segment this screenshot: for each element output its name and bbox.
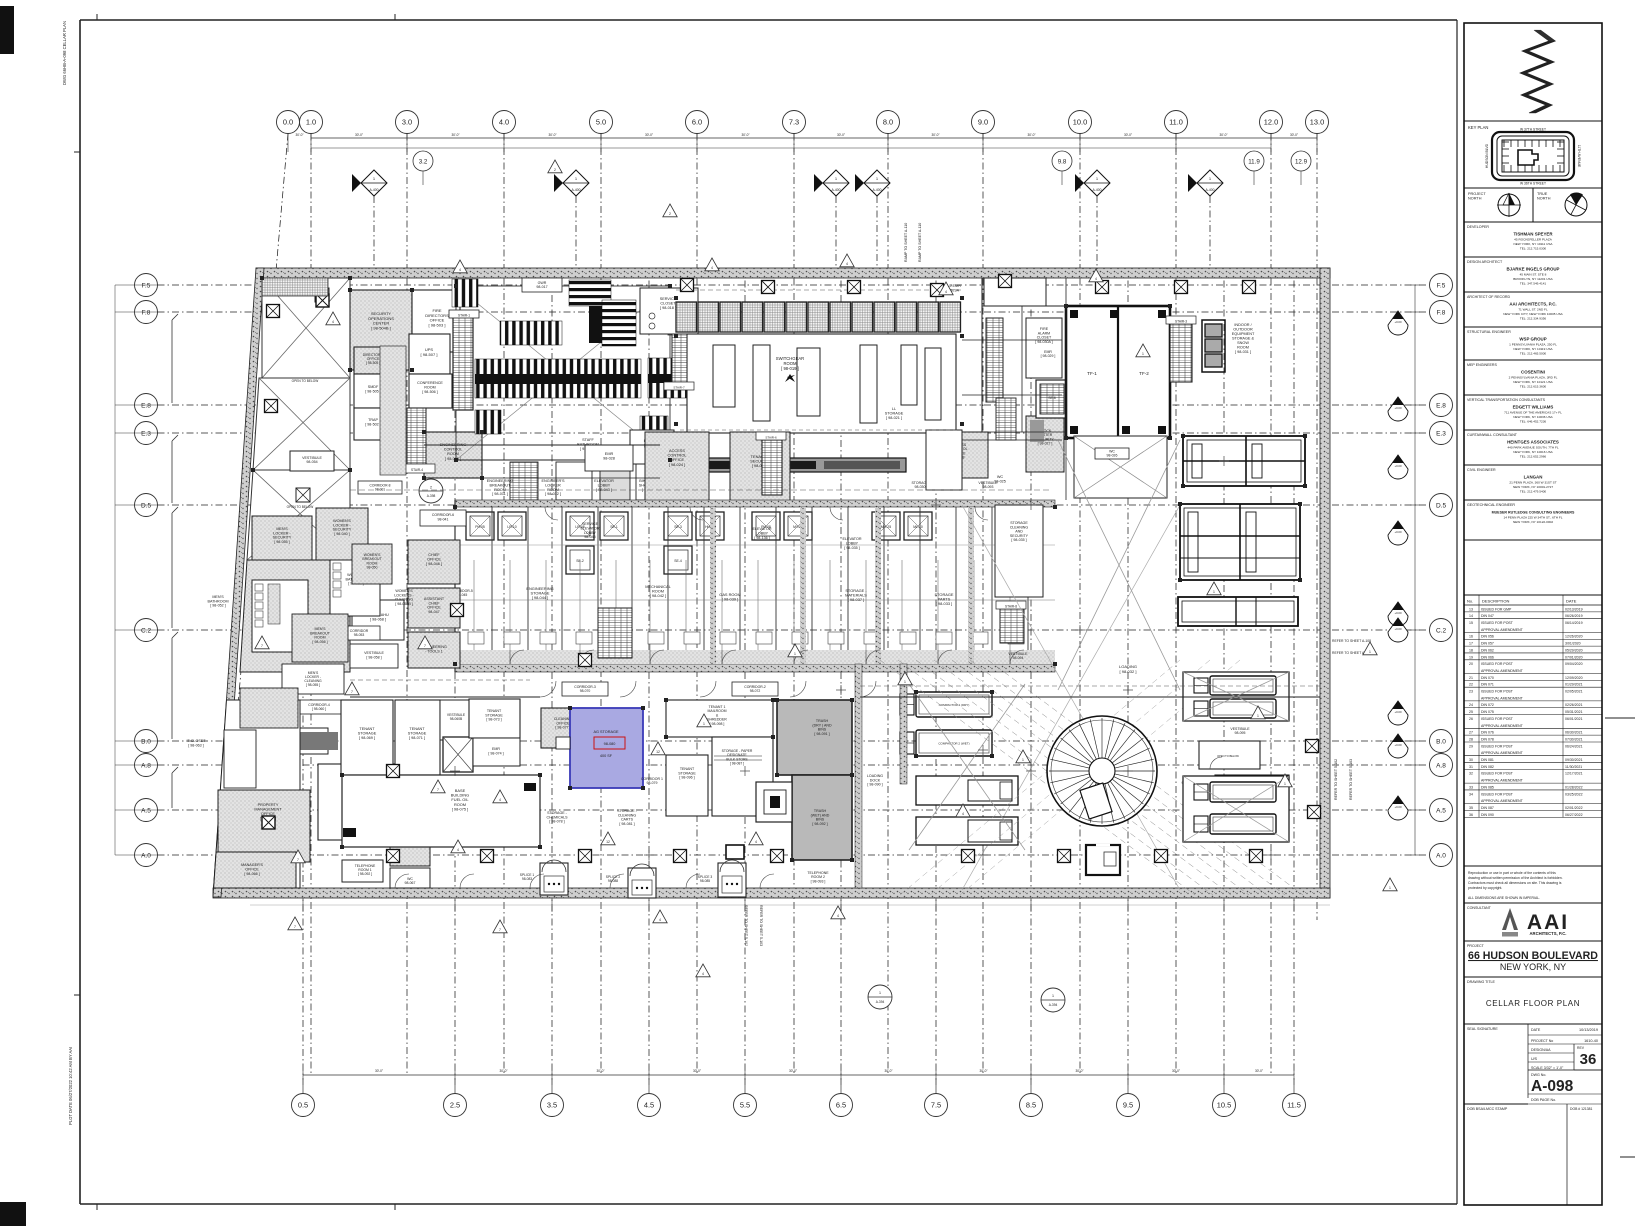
svg-text:98-053: 98-053 bbox=[354, 633, 365, 637]
svg-text:13.0: 13.0 bbox=[1310, 118, 1324, 127]
svg-text:W 36TH STREET: W 36TH STREET bbox=[1520, 182, 1546, 186]
svg-text:7: 7 bbox=[424, 644, 426, 648]
svg-text:[ 98-027 ]: [ 98-027 ] bbox=[1038, 442, 1053, 446]
svg-text:[ 98-502 ]: [ 98-502 ] bbox=[365, 422, 381, 426]
svg-text:30'-0": 30'-0" bbox=[596, 1069, 604, 1073]
svg-text:ISSUED FOR POST: ISSUED FOR POST bbox=[1481, 662, 1514, 666]
svg-text:1: 1 bbox=[904, 680, 906, 684]
svg-text:45 MAIN ST. STE 8: 45 MAIN ST. STE 8 bbox=[1520, 273, 1547, 277]
svg-text:REFER TO SHEET 5-102: REFER TO SHEET 5-102 bbox=[1334, 759, 1338, 800]
svg-text:12.0: 12.0 bbox=[1264, 118, 1278, 127]
svg-text:ENGINEER'S: ENGINEER'S bbox=[541, 479, 565, 483]
svg-text:DIN 066: DIN 066 bbox=[1481, 655, 1494, 659]
svg-text:1: 1 bbox=[1369, 650, 1371, 654]
svg-text:STORAGE: STORAGE bbox=[885, 411, 904, 415]
svg-text:DOB # 121381: DOB # 121381 bbox=[1570, 1107, 1593, 1111]
svg-text:30: 30 bbox=[1469, 758, 1473, 762]
svg-text:SERVICE: SERVICE bbox=[582, 522, 599, 526]
svg-text:4: 4 bbox=[837, 914, 839, 918]
svg-text:[ 98-092 ]: [ 98-092 ] bbox=[812, 822, 827, 826]
svg-text:W 37TH STREET: W 37TH STREET bbox=[1520, 128, 1546, 132]
svg-text:DWG 66HB-A-098 CELLAR PLAN: DWG 66HB-A-098 CELLAR PLAN bbox=[62, 21, 67, 85]
svg-text:30'-0": 30'-0" bbox=[375, 1069, 383, 1073]
svg-text:ELEVATOR: ELEVATOR bbox=[580, 526, 599, 530]
svg-text:[ 98-074 ]: [ 98-074 ] bbox=[488, 751, 503, 755]
svg-text:03/25/2022: 03/25/2022 bbox=[1565, 792, 1583, 796]
svg-text:06/01/2021: 06/01/2021 bbox=[1565, 717, 1583, 721]
svg-text:[ 98-069 ]: [ 98-069 ] bbox=[359, 736, 375, 740]
svg-text:APPROVAL AMENDMENT: APPROVAL AMENDMENT bbox=[1481, 799, 1524, 803]
svg-text:05/31/2021: 05/31/2021 bbox=[1565, 710, 1583, 714]
svg-text:NEW YORK, NY 10122-0002: NEW YORK, NY 10122-0002 bbox=[1513, 520, 1553, 524]
svg-text:A-400: A-400 bbox=[369, 188, 378, 192]
svg-text:ROOM: ROOM bbox=[1237, 346, 1249, 350]
svg-text:DIN 078: DIN 078 bbox=[1481, 737, 1494, 741]
svg-text:10.5: 10.5 bbox=[1217, 1101, 1231, 1110]
svg-text:45 ROCKEFELLER PLAZA: 45 ROCKEFELLER PLAZA bbox=[1514, 238, 1553, 242]
svg-text:ISSUED FOR POST: ISSUED FOR POST bbox=[1481, 772, 1514, 776]
svg-text:STORAGE: STORAGE bbox=[358, 732, 377, 736]
svg-text:ISSUED FOR POST: ISSUED FOR POST bbox=[1481, 792, 1514, 796]
svg-text:1: 1 bbox=[1052, 994, 1054, 998]
svg-text:[ 98-087 ]: [ 98-087 ] bbox=[730, 762, 744, 766]
svg-text:F.8: F.8 bbox=[142, 310, 151, 317]
svg-text:14: 14 bbox=[1469, 614, 1473, 618]
svg-text:[ 98-040 ]: [ 98-040 ] bbox=[334, 532, 350, 536]
svg-text:7: 7 bbox=[499, 928, 501, 932]
svg-text:A-398: A-398 bbox=[427, 494, 436, 498]
svg-text:98-030: 98-030 bbox=[915, 485, 926, 489]
svg-text:5.5: 5.5 bbox=[740, 1101, 750, 1110]
svg-text:E.8: E.8 bbox=[1436, 403, 1446, 410]
svg-text:9.0: 9.0 bbox=[978, 118, 988, 127]
svg-text:711 AVENUE OF THE AMERICAS 17+: 711 AVENUE OF THE AMERICAS 17+ FL bbox=[1504, 411, 1562, 415]
svg-text:30'-0": 30'-0" bbox=[645, 133, 653, 137]
svg-text:11.5: 11.5 bbox=[1287, 1101, 1301, 1110]
svg-text:8.0: 8.0 bbox=[883, 118, 893, 127]
svg-text:98-060B: 98-060B bbox=[450, 717, 463, 721]
svg-text:4: 4 bbox=[457, 848, 459, 852]
svg-text:DIN 056: DIN 056 bbox=[1481, 635, 1494, 639]
svg-text:0.5: 0.5 bbox=[298, 1101, 308, 1110]
svg-text:CONSULTANT: CONSULTANT bbox=[1467, 906, 1492, 910]
svg-text:[ 98-063 ]: [ 98-063 ] bbox=[188, 743, 204, 747]
svg-text:STAIR-6: STAIR-6 bbox=[765, 436, 777, 440]
svg-text:EMR: EMR bbox=[605, 452, 614, 456]
svg-text:+0.00: +0.00 bbox=[1394, 611, 1402, 615]
svg-text:01/29/2021: 01/29/2021 bbox=[1565, 683, 1583, 687]
svg-text:[ 98-042 ]: [ 98-042 ] bbox=[650, 593, 666, 598]
svg-text:LOBBY: LOBBY bbox=[584, 531, 597, 535]
svg-text:2 PENNSYLVANIA PLAZA, 3RD FL: 2 PENNSYLVANIA PLAZA, 3RD FL bbox=[1509, 376, 1558, 380]
svg-text:TRAP: TRAP bbox=[368, 418, 378, 422]
svg-text:CONFERENCE: CONFERENCE bbox=[417, 381, 443, 385]
svg-text:30'-0": 30'-0" bbox=[884, 1069, 892, 1073]
svg-text:[ 98-058 ]: [ 98-058 ] bbox=[366, 655, 381, 659]
svg-text:31: 31 bbox=[1469, 765, 1473, 769]
svg-text:[ 98-091 ]: [ 98-091 ] bbox=[814, 732, 829, 736]
svg-text:1: 1 bbox=[1284, 782, 1286, 786]
svg-text:98-093: 98-093 bbox=[983, 485, 994, 489]
svg-text:APPROVAL AMENDMENT: APPROVAL AMENDMENT bbox=[1481, 696, 1524, 700]
svg-text:LL: LL bbox=[892, 407, 896, 411]
svg-text:DRAWING TITLE: DRAWING TITLE bbox=[1467, 980, 1496, 984]
svg-text:C.2: C.2 bbox=[141, 628, 152, 635]
svg-text:ELEVATOR: ELEVATOR bbox=[752, 527, 771, 531]
svg-text:6.5: 6.5 bbox=[836, 1101, 846, 1110]
svg-text:OPEN TO BELOW: OPEN TO BELOW bbox=[292, 379, 319, 383]
svg-text:12/09/2020: 12/09/2020 bbox=[1565, 676, 1583, 680]
svg-text:OFFICE: OFFICE bbox=[245, 867, 259, 871]
svg-text:98-083: 98-083 bbox=[522, 877, 532, 881]
svg-text:25: 25 bbox=[1469, 710, 1473, 714]
svg-text:30'-0": 30'-0" bbox=[741, 133, 749, 137]
svg-text:26: 26 bbox=[1469, 717, 1473, 721]
svg-text:98-054: 98-054 bbox=[306, 460, 317, 464]
svg-text:22: 22 bbox=[1469, 683, 1473, 687]
svg-text:CELLAR FLOOR PLAN: CELLAR FLOOR PLAN bbox=[1486, 999, 1580, 1008]
svg-text:NEW YORK, NY: NEW YORK, NY bbox=[1500, 962, 1566, 972]
svg-text:HUDSON BLVD: HUDSON BLVD bbox=[1485, 143, 1489, 168]
svg-text:[ 98-046 ]: [ 98-046 ] bbox=[426, 562, 442, 566]
svg-text:12: 12 bbox=[656, 750, 660, 754]
svg-text:DATE: DATE bbox=[1531, 1028, 1541, 1032]
svg-text:05/29/2020: 05/29/2020 bbox=[1565, 648, 1583, 652]
svg-text:ROOM: ROOM bbox=[424, 385, 435, 389]
svg-text:ELEVATOR: ELEVATOR bbox=[594, 479, 614, 483]
svg-text:4: 4 bbox=[659, 918, 661, 922]
svg-text:36: 36 bbox=[1580, 1051, 1597, 1068]
svg-text:A.8: A.8 bbox=[141, 763, 151, 770]
svg-text:DEVELOPER: DEVELOPER bbox=[1467, 225, 1489, 229]
svg-text:30'-0": 30'-0" bbox=[499, 1069, 507, 1073]
svg-text:TF-1: TF-1 bbox=[1087, 371, 1097, 376]
svg-text:1: 1 bbox=[1389, 886, 1391, 890]
svg-text:STAFF: STAFF bbox=[582, 438, 594, 442]
svg-text:[ 98-081 ]: [ 98-081 ] bbox=[619, 822, 634, 826]
svg-text:[ 98-029 ]: [ 98-029 ] bbox=[1041, 354, 1056, 358]
svg-text:TEL: 347.549.4141: TEL: 347.549.4141 bbox=[1520, 281, 1547, 285]
svg-text:AG STORAGE: AG STORAGE bbox=[593, 730, 619, 734]
svg-text:30'-0": 30'-0" bbox=[1075, 1069, 1083, 1073]
svg-text:STAIR-4: STAIR-4 bbox=[411, 468, 423, 472]
svg-text:[ 98-024 ]: [ 98-024 ] bbox=[669, 462, 685, 467]
svg-text:MANAGER'S: MANAGER'S bbox=[241, 863, 263, 867]
svg-text:A.5: A.5 bbox=[141, 808, 151, 815]
svg-text:440 PARK AVENUE SOUTH, 7TH FL: 440 PARK AVENUE SOUTH, 7TH FL bbox=[1507, 446, 1558, 450]
svg-text:02/01/2022: 02/01/2022 bbox=[1565, 806, 1583, 810]
svg-text:TEL: 212.715.0300: TEL: 212.715.0300 bbox=[1520, 246, 1547, 250]
svg-text:2.5: 2.5 bbox=[450, 1101, 460, 1110]
svg-text:1.0: 1.0 bbox=[306, 118, 316, 127]
svg-text:4: 4 bbox=[332, 320, 334, 324]
svg-text:06/27/2022: 06/27/2022 bbox=[1565, 813, 1583, 817]
svg-text:A-400: A-400 bbox=[1092, 188, 1101, 192]
svg-text:LANGAN: LANGAN bbox=[1524, 475, 1543, 480]
svg-text:DIN 071: DIN 071 bbox=[1481, 683, 1494, 687]
svg-text:A.0: A.0 bbox=[1436, 853, 1446, 860]
svg-text:[ 98-090 ]: [ 98-090 ] bbox=[867, 783, 882, 787]
svg-text:F.5: F.5 bbox=[1437, 283, 1446, 290]
svg-text:LOCKER: LOCKER bbox=[545, 483, 561, 487]
svg-text:02/05/2021: 02/05/2021 bbox=[1565, 690, 1583, 694]
svg-text:A.8: A.8 bbox=[1436, 763, 1446, 770]
svg-text:+0.00: +0.00 bbox=[1394, 406, 1402, 410]
svg-text:COMPACTOR 1 (DRY): COMPACTOR 1 (DRY) bbox=[939, 703, 970, 707]
svg-text:17: 17 bbox=[1469, 642, 1473, 646]
svg-text:1: 1 bbox=[1022, 758, 1024, 762]
svg-text:4.0: 4.0 bbox=[499, 118, 509, 127]
svg-text:06/26/2019: 06/26/2019 bbox=[1565, 614, 1583, 618]
svg-text:98-085: 98-085 bbox=[700, 879, 710, 883]
svg-text:SNOW: SNOW bbox=[1237, 341, 1249, 345]
svg-text:U/S: U/S bbox=[1531, 1057, 1538, 1061]
svg-text:[ 98-052 ]: [ 98-052 ] bbox=[210, 604, 226, 608]
svg-text:PROJECT No: PROJECT No bbox=[1531, 1039, 1553, 1043]
svg-text:PROJECT: PROJECT bbox=[1467, 944, 1485, 948]
svg-text:12/17/2021: 12/17/2021 bbox=[1565, 772, 1583, 776]
svg-text:1: 1 bbox=[1257, 714, 1259, 718]
svg-text:STORAGE &: STORAGE & bbox=[1232, 337, 1255, 341]
svg-text:33: 33 bbox=[1469, 785, 1473, 789]
svg-text:8.5: 8.5 bbox=[1026, 1101, 1036, 1110]
svg-text:TEL: 212.465.5000: TEL: 212.465.5000 bbox=[1520, 351, 1547, 355]
svg-text:ALL DIMENSIONS ARE SHOWN IN IM: ALL DIMENSIONS ARE SHOWN IN IMPERIAL. bbox=[1468, 896, 1540, 900]
svg-text:DESCRIPTION: DESCRIPTION bbox=[1482, 599, 1509, 604]
svg-text:11.9: 11.9 bbox=[1248, 159, 1260, 166]
svg-text:1: 1 bbox=[879, 991, 881, 995]
svg-text:1: 1 bbox=[1142, 352, 1144, 356]
svg-text:A-400: A-400 bbox=[831, 188, 840, 192]
svg-text:0.0: 0.0 bbox=[283, 118, 293, 127]
svg-text:REFER TO SHEET A-108: REFER TO SHEET A-108 bbox=[1332, 639, 1371, 643]
svg-text:[ 98-078 ]: [ 98-078 ] bbox=[549, 820, 564, 824]
svg-text:5.0: 5.0 bbox=[596, 118, 606, 127]
svg-text:A-394: A-394 bbox=[876, 1000, 885, 1004]
svg-text:30'-0": 30'-0" bbox=[451, 133, 459, 137]
svg-text:SE-6: SE-6 bbox=[1048, 396, 1056, 400]
svg-text:ENGINEERING: ENGINEERING bbox=[487, 479, 514, 483]
svg-text:TENANT: TENANT bbox=[359, 727, 375, 731]
svg-text:35: 35 bbox=[1469, 806, 1473, 810]
svg-text:09/04/2020: 09/04/2020 bbox=[1565, 662, 1583, 666]
svg-text:400 SF: 400 SF bbox=[600, 754, 613, 758]
svg-text:[ 98-055 ]: [ 98-055 ] bbox=[274, 540, 290, 544]
svg-text:12: 12 bbox=[606, 840, 610, 844]
svg-text:7: 7 bbox=[351, 690, 353, 694]
svg-text:98-050: 98-050 bbox=[367, 566, 378, 570]
svg-text:29: 29 bbox=[1469, 744, 1473, 748]
svg-text:TEL: 212.479.5400: TEL: 212.479.5400 bbox=[1520, 489, 1547, 493]
svg-text:30'-0": 30'-0" bbox=[1124, 133, 1132, 137]
svg-text:12/26/2020: 12/26/2020 bbox=[1565, 635, 1583, 639]
svg-text:98-067: 98-067 bbox=[405, 881, 416, 885]
svg-text:REV: REV bbox=[1577, 1046, 1585, 1050]
svg-text:11TH AVENUE: 11TH AVENUE bbox=[1577, 145, 1581, 168]
svg-text:4: 4 bbox=[711, 266, 713, 270]
svg-text:VERTICAL TRANSPORTATION CONSUL: VERTICAL TRANSPORTATION CONSULTANTS bbox=[1467, 398, 1546, 402]
svg-text:21: 21 bbox=[1469, 676, 1473, 680]
svg-text:STAIR-1: STAIR-1 bbox=[458, 314, 470, 318]
svg-text:NEW YORK, NY 10016 USA: NEW YORK, NY 10016 USA bbox=[1513, 450, 1553, 454]
svg-text:1: 1 bbox=[703, 722, 705, 726]
svg-text:OPEN TO BELOW: OPEN TO BELOW bbox=[1217, 754, 1239, 758]
svg-text:4: 4 bbox=[1095, 277, 1097, 281]
svg-text:DIN 072: DIN 072 bbox=[1481, 703, 1494, 707]
svg-text:27: 27 bbox=[1469, 731, 1473, 735]
svg-text:DIN 062: DIN 062 bbox=[1481, 648, 1494, 652]
svg-text:[ 98-031 ]: [ 98-031 ] bbox=[1235, 350, 1251, 354]
svg-text:98-094: 98-094 bbox=[1013, 656, 1024, 660]
svg-text:+0.00: +0.00 bbox=[1394, 627, 1402, 631]
svg-text:[ 98-039 ]: [ 98-039 ] bbox=[722, 597, 738, 602]
svg-text:[ 98-092 ]: [ 98-092 ] bbox=[358, 872, 372, 876]
svg-text:EDGETT WILLIAMS: EDGETT WILLIAMS bbox=[1513, 405, 1554, 410]
svg-text:2: 2 bbox=[669, 212, 671, 216]
svg-text:APPROVAL AMENDMENT: APPROVAL AMENDMENT bbox=[1481, 724, 1524, 728]
svg-text:+0.00: +0.00 bbox=[1394, 743, 1402, 747]
svg-text:DIN 081: DIN 081 bbox=[1481, 758, 1494, 762]
svg-text:11.0: 11.0 bbox=[1169, 118, 1183, 127]
svg-text:A-400: A-400 bbox=[571, 188, 580, 192]
svg-text:+0.00: +0.00 bbox=[1394, 710, 1402, 714]
svg-text:7.3: 7.3 bbox=[789, 118, 799, 127]
svg-text:Contractors must check all dim: Contractors must check all dimensions on… bbox=[1468, 881, 1562, 885]
svg-text:DOB BSA/LMCC STAMP: DOB BSA/LMCC STAMP bbox=[1467, 1107, 1508, 1111]
svg-text:12.9: 12.9 bbox=[1295, 159, 1308, 166]
svg-text:NEW YORK, NY 10001-2727: NEW YORK, NY 10001-2727 bbox=[1513, 485, 1553, 489]
svg-text:1 PENNSYLVANIA PLAZA, 250 FL: 1 PENNSYLVANIA PLAZA, 250 FL bbox=[1509, 343, 1557, 347]
svg-text:[ 98-037 ]: [ 98-037 ] bbox=[848, 597, 864, 602]
svg-text:ARCHITECT OF RECORD: ARCHITECT OF RECORD bbox=[1467, 295, 1510, 299]
svg-text:TEL: 646.452.7236: TEL: 646.452.7236 bbox=[1520, 419, 1547, 423]
svg-text:D.5: D.5 bbox=[1436, 503, 1447, 510]
svg-text:98-045: 98-045 bbox=[584, 535, 595, 539]
svg-text:[ 98-093 ]: [ 98-093 ] bbox=[811, 879, 826, 883]
svg-text:30'-0": 30'-0" bbox=[1255, 1069, 1263, 1073]
svg-text:PLOT DATE 06/27/2022 10:42 AM: PLOT DATE 06/27/2022 10:42 AM BY AAI bbox=[68, 1047, 73, 1125]
svg-text:WC: WC bbox=[997, 475, 1004, 479]
svg-text:PROPERTY: PROPERTY bbox=[258, 803, 279, 807]
svg-text:TEL: 212.615.3600: TEL: 212.615.3600 bbox=[1520, 384, 1547, 388]
svg-text:06/14/2019: 06/14/2019 bbox=[1565, 621, 1583, 625]
svg-text:EQUIPMENT: EQUIPMENT bbox=[1232, 332, 1255, 336]
svg-text:CORRIDOR-6: CORRIDOR-6 bbox=[432, 513, 454, 517]
svg-text:28: 28 bbox=[1469, 737, 1473, 741]
svg-text:7: 7 bbox=[294, 925, 296, 929]
svg-text:30'-0": 30'-0" bbox=[295, 133, 303, 137]
svg-text:AAI ARCHITECTS, P.C.: AAI ARCHITECTS, P.C. bbox=[1509, 302, 1556, 307]
svg-text:D.5: D.5 bbox=[141, 503, 152, 510]
svg-text:30'-0": 30'-0" bbox=[1027, 133, 1035, 137]
svg-text:SE-1: SE-1 bbox=[610, 525, 618, 529]
svg-text:21 PENN PLAZA, 360 W 31ST ST: 21 PENN PLAZA, 360 W 31ST ST bbox=[1509, 481, 1556, 485]
svg-text:2: 2 bbox=[554, 168, 556, 172]
svg-text:LOBBY: LOBBY bbox=[598, 483, 611, 487]
svg-text:ISSUED FOR POST: ISSUED FOR POST bbox=[1481, 744, 1514, 748]
svg-text:A.5: A.5 bbox=[1436, 808, 1446, 815]
svg-text:DIN 076: DIN 076 bbox=[1481, 731, 1494, 735]
svg-text:4: 4 bbox=[945, 290, 947, 294]
svg-text:66 HUDSON BOULEVARD: 66 HUDSON BOULEVARD bbox=[1468, 950, 1598, 962]
svg-text:OUTDOOR: OUTDOOR bbox=[1233, 328, 1253, 332]
svg-text:No.: No. bbox=[1467, 599, 1473, 604]
svg-text:30'-0": 30'-0" bbox=[355, 133, 363, 137]
svg-text:STRUCTURAL ENGINEER: STRUCTURAL ENGINEER bbox=[1467, 330, 1511, 334]
svg-text:98-079: 98-079 bbox=[647, 781, 658, 785]
svg-text:07/30/2021: 07/30/2021 bbox=[1565, 737, 1583, 741]
svg-text:MANAGEMENT: MANAGEMENT bbox=[254, 808, 282, 812]
svg-text:3/01/2020: 3/01/2020 bbox=[1565, 642, 1581, 646]
svg-text:30'-0": 30'-0" bbox=[548, 133, 556, 137]
svg-text:7.5: 7.5 bbox=[931, 1101, 941, 1110]
svg-text:[ 98-035 ]: [ 98-035 ] bbox=[1011, 538, 1026, 542]
svg-text:SMDF: SMDF bbox=[368, 385, 379, 389]
svg-text:DIN 057: DIN 057 bbox=[1481, 642, 1494, 646]
svg-text:4: 4 bbox=[846, 262, 848, 266]
svg-text:[ 98-066 ]: [ 98-066 ] bbox=[244, 872, 260, 876]
svg-text:DATE: DATE bbox=[1566, 599, 1577, 604]
svg-text:[ 98-503 ]: [ 98-503 ] bbox=[429, 322, 446, 327]
svg-text:ISSUED FOR POST: ISSUED FOR POST bbox=[1481, 717, 1514, 721]
svg-text:CIVIL ENGINEER: CIVIL ENGINEER bbox=[1467, 468, 1496, 472]
svg-text:06/30/2021: 06/30/2021 bbox=[1565, 731, 1583, 735]
svg-text:APPROVAL AMENDMENT: APPROVAL AMENDMENT bbox=[1481, 751, 1524, 755]
svg-text:SEAL SIGNATURE: SEAL SIGNATURE bbox=[1467, 1027, 1498, 1031]
svg-text:PH-05: PH-05 bbox=[475, 525, 485, 529]
svg-text:4: 4 bbox=[755, 840, 757, 844]
svg-text:3.5: 3.5 bbox=[547, 1101, 557, 1110]
svg-text:RAMP TO SHEET A-110: RAMP TO SHEET A-110 bbox=[918, 223, 922, 262]
svg-text:32: 32 bbox=[1469, 772, 1473, 776]
svg-text:TEL: 212.652.2966: TEL: 212.652.2966 bbox=[1520, 454, 1547, 458]
svg-text:[ 98-506 ]: [ 98-506 ] bbox=[422, 390, 438, 394]
svg-text:[ 98-021 ]: [ 98-021 ] bbox=[886, 416, 902, 420]
svg-text:30'-0": 30'-0" bbox=[1172, 1069, 1180, 1073]
svg-text:[ 98-044 ]: [ 98-044 ] bbox=[532, 595, 548, 600]
svg-text:15: 15 bbox=[1469, 621, 1473, 625]
svg-text:[ 98-032 ]: [ 98-032 ] bbox=[1120, 669, 1137, 674]
svg-text:HEINTGES ASSOCIATES: HEINTGES ASSOCIATES bbox=[1507, 440, 1559, 445]
svg-text:[ 98-035 ]: [ 98-035 ] bbox=[844, 546, 860, 550]
svg-text:ISSUED FOR POST: ISSUED FOR POST bbox=[1481, 621, 1514, 625]
svg-text:protected by copyright.: protected by copyright. bbox=[1468, 886, 1502, 890]
svg-text:3.0: 3.0 bbox=[402, 118, 412, 127]
svg-text:4: 4 bbox=[499, 798, 501, 802]
svg-text:30'-0": 30'-0" bbox=[931, 133, 939, 137]
svg-text:ISSUED FOR GMP: ISSUED FOR GMP bbox=[1481, 607, 1512, 611]
svg-text:4: 4 bbox=[459, 268, 461, 272]
svg-text:DOB PAGE No.: DOB PAGE No. bbox=[1531, 1098, 1556, 1102]
svg-text:14 PENN PLAZA 225 W 34TH ST.,: 14 PENN PLAZA 225 W 34TH ST., 6TH FL bbox=[1504, 516, 1563, 520]
svg-text:BJARKE INGELS GROUP: BJARKE INGELS GROUP bbox=[1507, 267, 1560, 272]
svg-text:drawing without written permis: drawing without written permission of th… bbox=[1468, 876, 1563, 880]
svg-text:+0.00: +0.00 bbox=[1394, 530, 1402, 534]
svg-text:[ 98-507 ]: [ 98-507 ] bbox=[421, 352, 438, 357]
svg-text:NORTH: NORTH bbox=[1537, 197, 1551, 201]
svg-text:+0.00: +0.00 bbox=[1394, 464, 1402, 468]
svg-text:ARCHITECTS, P.C.: ARCHITECTS, P.C. bbox=[1530, 931, 1567, 936]
svg-text:COMPACTOR 2 (WET): COMPACTOR 2 (WET) bbox=[938, 742, 969, 746]
svg-text:3.2: 3.2 bbox=[419, 159, 428, 166]
svg-text:16: 16 bbox=[1469, 635, 1473, 639]
svg-text:[ 98-073 ]: [ 98-073 ] bbox=[486, 718, 501, 722]
svg-text:CONTROL: CONTROL bbox=[444, 448, 463, 452]
svg-text:DIN 087: DIN 087 bbox=[1481, 806, 1494, 810]
svg-text:INDOOR /: INDOOR / bbox=[1234, 323, 1252, 327]
svg-text:APPROVAL AMENDMENT: APPROVAL AMENDMENT bbox=[1481, 628, 1524, 632]
svg-text:71 WALL ST. 2ND FL: 71 WALL ST. 2ND FL bbox=[1518, 308, 1548, 312]
